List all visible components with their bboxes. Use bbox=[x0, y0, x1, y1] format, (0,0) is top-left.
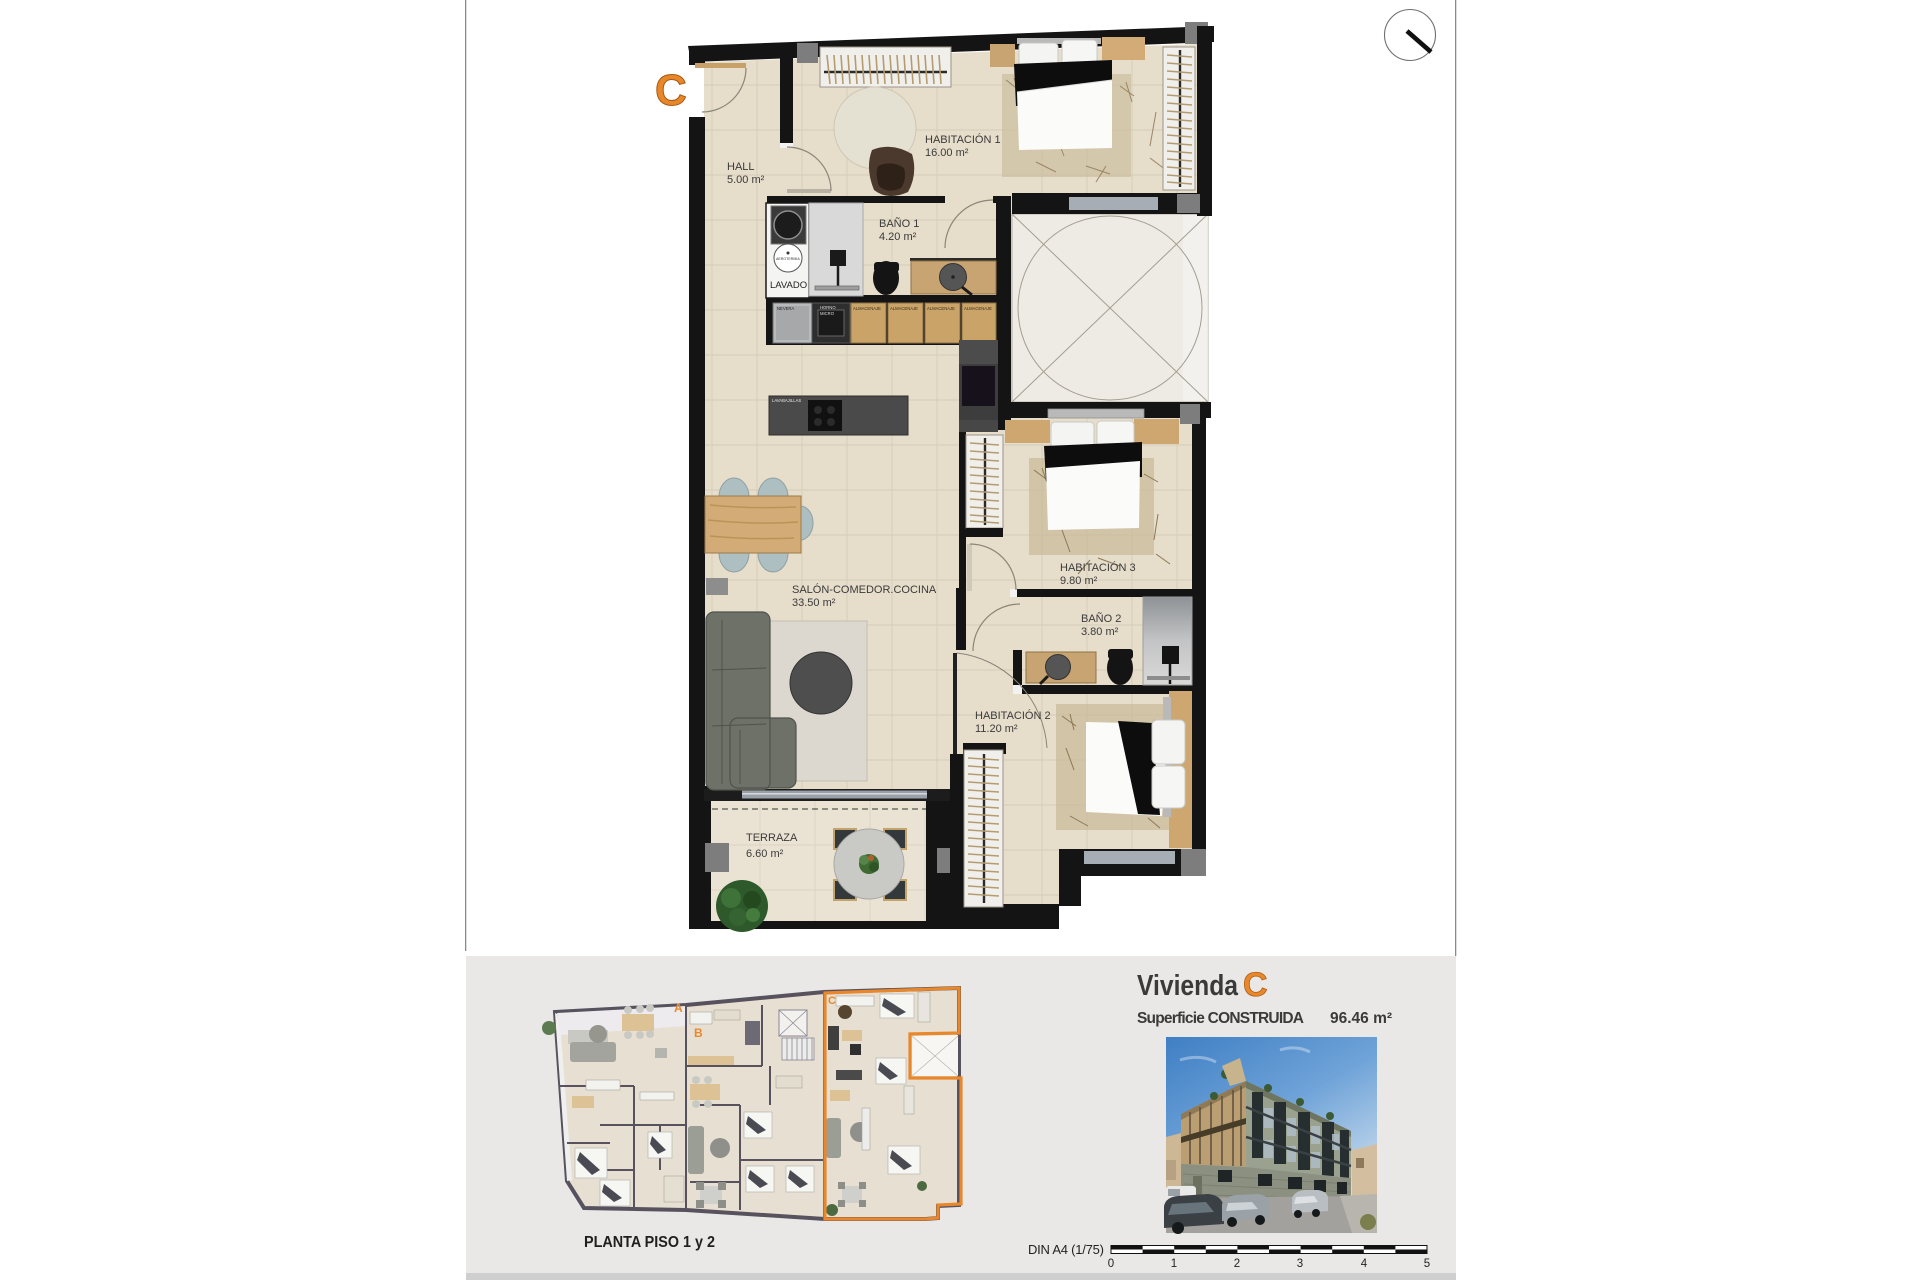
svg-text:AEROTERMIA: AEROTERMIA bbox=[776, 257, 800, 261]
svg-text:3.80 m²: 3.80 m² bbox=[1081, 626, 1119, 638]
svg-text:LAVABAJILLAS: LAVABAJILLAS bbox=[772, 398, 801, 403]
svg-text:HABITACIÓN 3: HABITACIÓN 3 bbox=[1060, 561, 1136, 574]
svg-text:ALMACENAJE: ALMACENAJE bbox=[927, 306, 955, 311]
svg-text:5: 5 bbox=[1424, 1258, 1430, 1270]
svg-text:33.50 m²: 33.50 m² bbox=[792, 597, 836, 609]
svg-text:3: 3 bbox=[1297, 1258, 1303, 1270]
svg-text:4.20 m²: 4.20 m² bbox=[879, 231, 917, 243]
svg-text:ALMACENAJE: ALMACENAJE bbox=[853, 306, 881, 311]
svg-text:9.80 m²: 9.80 m² bbox=[1060, 575, 1098, 587]
svg-text:BAÑO 2: BAÑO 2 bbox=[1081, 612, 1121, 625]
svg-text:C: C bbox=[655, 66, 687, 115]
svg-text:NEVERA: NEVERA bbox=[777, 306, 794, 311]
svg-text:DIN A4 (1/75): DIN A4 (1/75) bbox=[1028, 1242, 1104, 1257]
svg-text:TERRAZA: TERRAZA bbox=[746, 832, 798, 844]
svg-text:A: A bbox=[674, 1001, 683, 1015]
svg-text:0: 0 bbox=[1108, 1258, 1114, 1270]
svg-text:PLANTA PISO 1 y 2: PLANTA PISO 1 y 2 bbox=[584, 1234, 715, 1251]
svg-text:B: B bbox=[694, 1026, 703, 1040]
svg-text:11.20 m²: 11.20 m² bbox=[975, 723, 1018, 735]
svg-text:HALL: HALL bbox=[727, 161, 755, 173]
svg-text:MICRO: MICRO bbox=[820, 311, 835, 316]
svg-text:1: 1 bbox=[1171, 1258, 1177, 1270]
svg-text:C: C bbox=[1243, 966, 1268, 1004]
svg-text:4: 4 bbox=[1361, 1258, 1368, 1270]
svg-text:HABITACIÓN 2: HABITACIÓN 2 bbox=[975, 709, 1051, 722]
svg-text:6.60 m²: 6.60 m² bbox=[746, 848, 784, 860]
svg-text:HABITACIÓN 1: HABITACIÓN 1 bbox=[925, 133, 1001, 146]
svg-text:16.00 m²: 16.00 m² bbox=[925, 147, 969, 159]
svg-text:HORNO: HORNO bbox=[820, 305, 836, 310]
svg-text:5.00 m²: 5.00 m² bbox=[727, 174, 765, 186]
svg-text:LAVADO: LAVADO bbox=[770, 280, 807, 291]
svg-text:C: C bbox=[828, 995, 836, 1007]
svg-text:Superficie CONSTRUIDA: Superficie CONSTRUIDA bbox=[1137, 1010, 1304, 1027]
svg-text:2: 2 bbox=[1234, 1258, 1240, 1270]
svg-text:ALMACENAJE: ALMACENAJE bbox=[964, 306, 992, 311]
svg-text:Vivienda: Vivienda bbox=[1137, 970, 1239, 1002]
svg-text:ALMACENAJE: ALMACENAJE bbox=[890, 306, 918, 311]
svg-text:96.46 m²: 96.46 m² bbox=[1330, 1010, 1392, 1027]
svg-text:BAÑO 1: BAÑO 1 bbox=[879, 217, 919, 230]
svg-text:SALÓN-COMEDOR.COCINA: SALÓN-COMEDOR.COCINA bbox=[792, 583, 937, 596]
